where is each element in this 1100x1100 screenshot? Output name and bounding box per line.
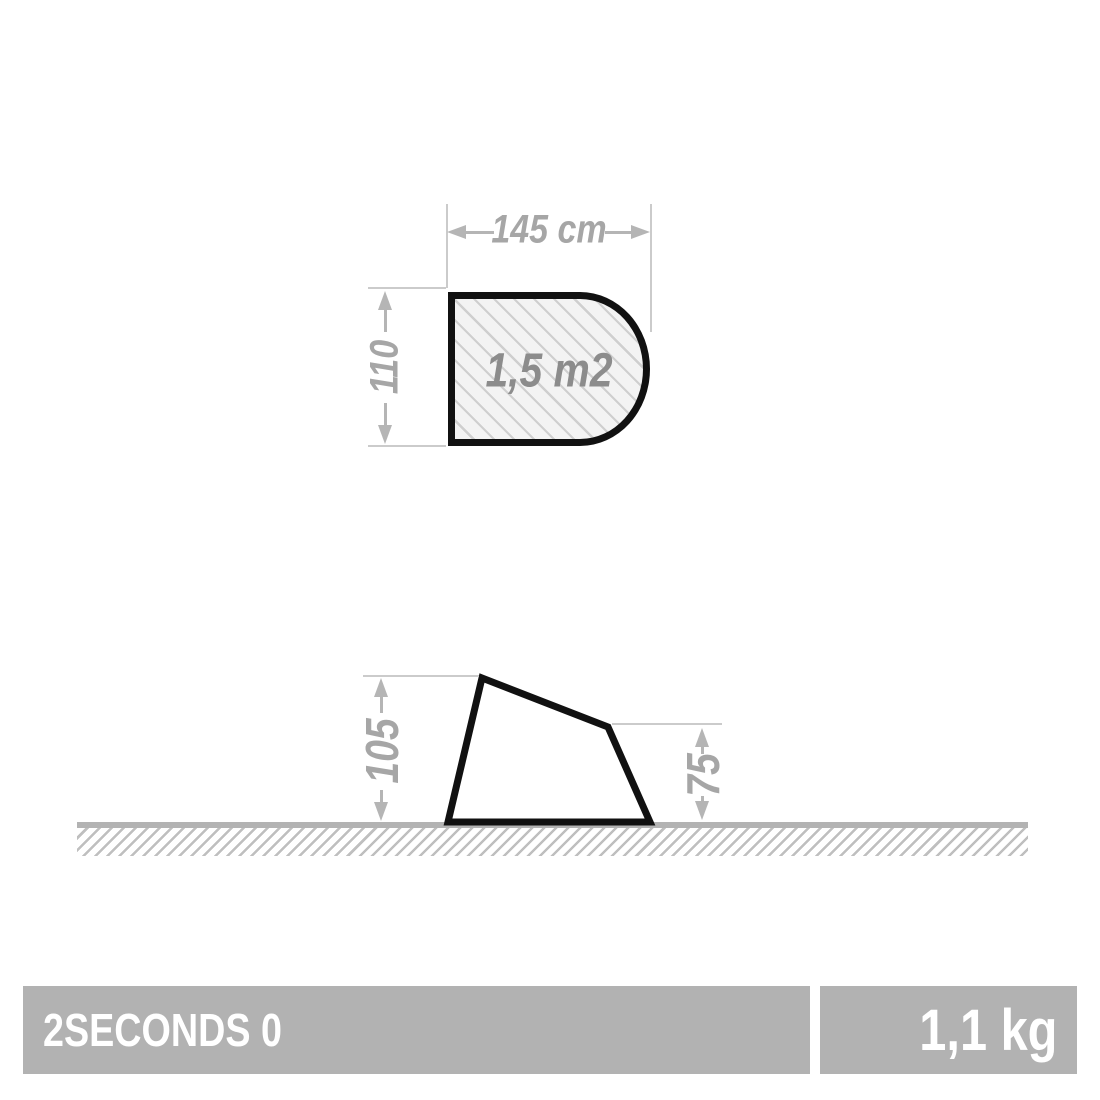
- depth-extension-line-bottom: [368, 445, 446, 447]
- product-name-label: 2SECONDS 0: [43, 1003, 282, 1057]
- product-name-bar: 2SECONDS 0: [23, 986, 810, 1074]
- side-front-height-label: 105: [355, 718, 409, 783]
- width-extension-line-left: [446, 204, 448, 288]
- arrow-down-icon: [378, 425, 392, 444]
- arrow-left-icon: [447, 225, 466, 239]
- floor-depth-label: 110: [363, 340, 408, 394]
- depth-extension-line-top: [368, 287, 446, 289]
- depth-dimension-stem-top: [384, 308, 387, 332]
- arrow-down-icon: [695, 801, 709, 820]
- side-rear-height-label: 75: [676, 753, 730, 796]
- floor-area-label: 1,5 m2: [485, 343, 612, 398]
- front-height-extension-line: [363, 675, 479, 677]
- depth-dimension-stem-bottom: [384, 403, 387, 427]
- front-height-stem-top: [380, 695, 383, 713]
- width-dimension-stem-left: [466, 231, 494, 234]
- arrow-down-icon: [374, 802, 388, 821]
- weight-bar: 1,1 kg: [820, 986, 1077, 1074]
- arrow-right-icon: [631, 225, 650, 239]
- weight-label: 1,1 kg: [919, 997, 1057, 1064]
- ground-hatch: [77, 828, 1028, 856]
- product-dimensions-diagram: 145 cm 110 1,5 m2 105 75: [0, 0, 1100, 1100]
- floor-width-label: 145 cm: [491, 208, 606, 253]
- width-dimension-stem-right: [605, 231, 633, 234]
- tent-side-profile: [440, 665, 660, 830]
- width-extension-line-right: [650, 204, 652, 332]
- rear-height-extension-line: [612, 723, 722, 725]
